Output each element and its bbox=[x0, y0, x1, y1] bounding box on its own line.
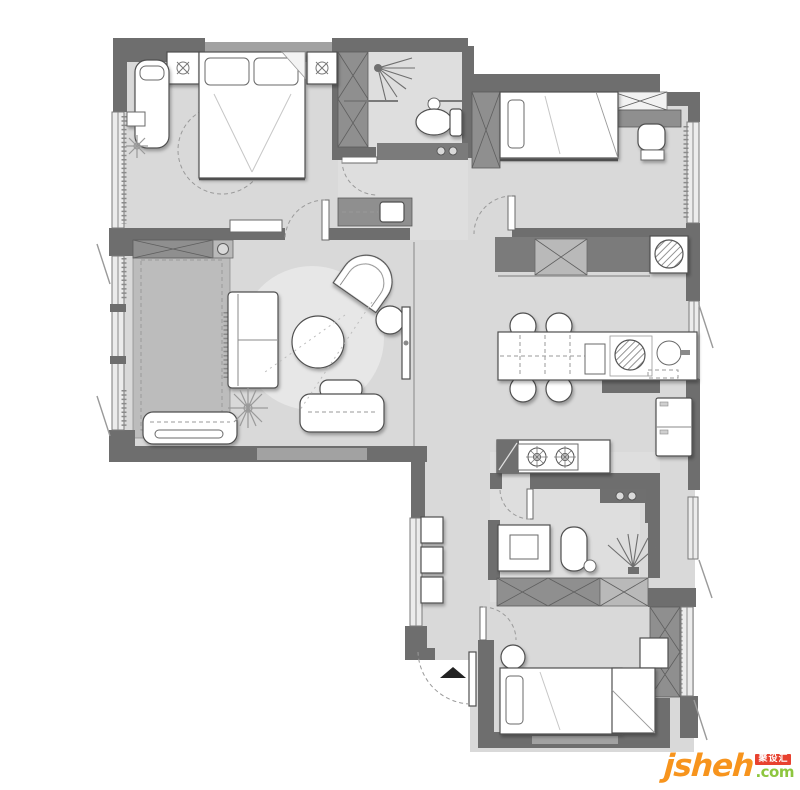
bedroom3-nightstand bbox=[640, 638, 668, 668]
living-left-window bbox=[97, 244, 126, 436]
low-cabinet bbox=[230, 220, 282, 232]
shoe-cabinet bbox=[421, 517, 443, 543]
faucet-icon bbox=[680, 350, 690, 355]
dining-island-counter bbox=[498, 332, 697, 380]
washing-machine bbox=[650, 236, 688, 273]
watermark-brand-text: jsheh bbox=[663, 751, 754, 782]
watermark: jsheh 聚设汇 .com bbox=[664, 751, 794, 782]
fridge bbox=[656, 398, 692, 456]
entry-door-leaf bbox=[469, 652, 476, 706]
bedroom3-door-leaf bbox=[480, 607, 486, 640]
bench-ottoman bbox=[300, 394, 384, 432]
gas-stove-counter bbox=[497, 440, 610, 473]
ottoman bbox=[376, 306, 404, 334]
entry-arrow-icon bbox=[440, 667, 466, 678]
open-casement-icon bbox=[699, 305, 713, 348]
bathroom-main-wardrobe bbox=[338, 52, 368, 147]
hall-left-window bbox=[410, 518, 422, 626]
floor-plan-page: jsheh 聚设汇 .com bbox=[0, 0, 800, 790]
cutting-board bbox=[585, 344, 605, 374]
open-casement-icon bbox=[97, 244, 110, 284]
tatami-panel bbox=[133, 252, 230, 438]
dining-cabinet-row bbox=[495, 236, 688, 276]
bathroom2-door-leaf bbox=[527, 489, 533, 519]
wash-basin bbox=[380, 202, 404, 222]
desk-chair bbox=[638, 124, 665, 150]
window-bench bbox=[143, 412, 237, 444]
master-door-leaf bbox=[322, 200, 329, 240]
single-bed bbox=[500, 92, 618, 158]
shoe-cabinet bbox=[421, 577, 443, 603]
floor-drain bbox=[428, 98, 440, 110]
floor-plan-drawing bbox=[0, 0, 800, 790]
bath-door-leaf bbox=[342, 157, 377, 163]
coffee-table bbox=[292, 316, 344, 368]
open-casement-icon bbox=[699, 560, 712, 598]
cooktop-icon bbox=[615, 340, 645, 370]
pillow bbox=[205, 58, 249, 85]
watermark-tld-text: .com bbox=[755, 765, 794, 780]
bed bbox=[500, 668, 655, 734]
blanket-fold bbox=[612, 668, 655, 733]
pillow bbox=[506, 676, 523, 724]
sink-icon bbox=[657, 341, 681, 365]
shoe-cabinet bbox=[421, 547, 443, 573]
toilet bbox=[416, 109, 462, 136]
bathroom2-wardrobe-row bbox=[497, 578, 648, 606]
side-table bbox=[127, 112, 145, 126]
vanity bbox=[498, 525, 550, 571]
master-left-window bbox=[112, 112, 124, 228]
sofa bbox=[228, 292, 278, 388]
corridor-vanity bbox=[338, 198, 412, 226]
living-storage-cabinet bbox=[133, 240, 233, 258]
bath-counter bbox=[377, 143, 468, 160]
double-bed bbox=[199, 52, 305, 178]
plant-icon bbox=[228, 388, 268, 428]
bedroom2-wardrobe bbox=[472, 92, 500, 168]
round-side-table bbox=[501, 645, 525, 669]
bedroom2-right-window bbox=[686, 122, 699, 223]
open-casement-icon bbox=[97, 396, 110, 436]
bedroom2-door-leaf bbox=[508, 196, 515, 230]
pillow bbox=[508, 100, 524, 148]
shelf-with-knobs bbox=[600, 489, 646, 503]
chair-footrest bbox=[641, 150, 664, 160]
